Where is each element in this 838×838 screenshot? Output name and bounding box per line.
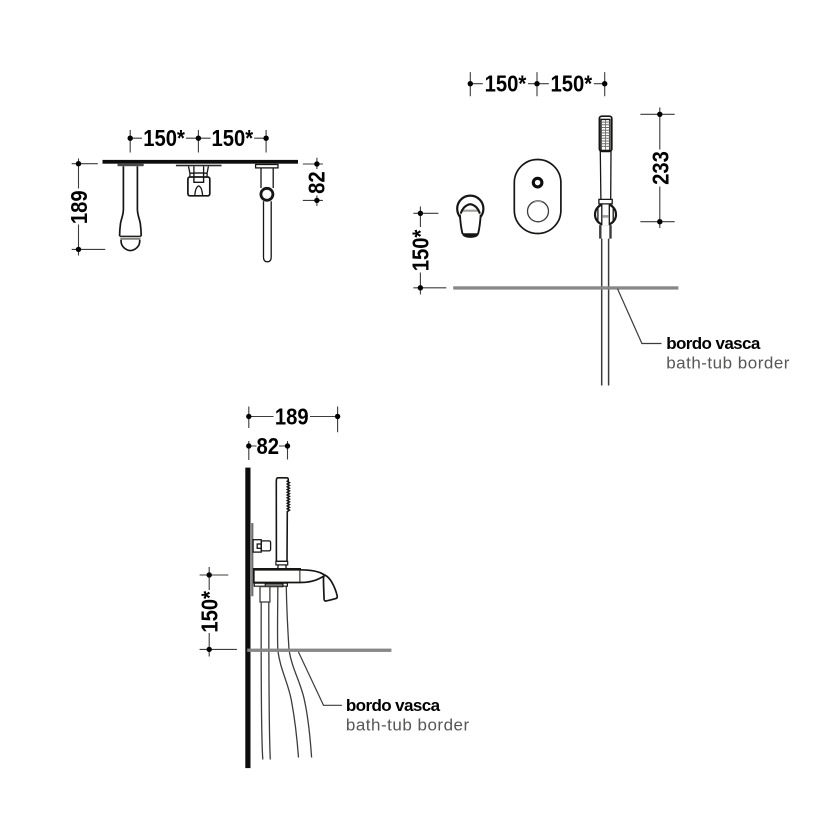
svg-text:150*: 150* xyxy=(143,125,185,152)
svg-text:82: 82 xyxy=(303,171,330,194)
svg-text:189: 189 xyxy=(66,190,93,224)
svg-text:150*: 150* xyxy=(407,229,434,271)
svg-text:150*: 150* xyxy=(550,70,592,97)
svg-text:150*: 150* xyxy=(196,590,223,632)
svg-text:150*: 150* xyxy=(211,125,253,152)
svg-text:150*: 150* xyxy=(485,70,527,97)
svg-text:bordo vasca: bordo vasca xyxy=(346,696,441,715)
svg-text:bath-tub border: bath-tub border xyxy=(346,715,470,734)
svg-text:82: 82 xyxy=(256,433,279,460)
svg-text:233: 233 xyxy=(647,151,674,185)
svg-text:bordo vasca: bordo vasca xyxy=(666,334,761,353)
svg-text:189: 189 xyxy=(275,403,309,430)
svg-text:bath-tub border: bath-tub border xyxy=(666,354,790,373)
